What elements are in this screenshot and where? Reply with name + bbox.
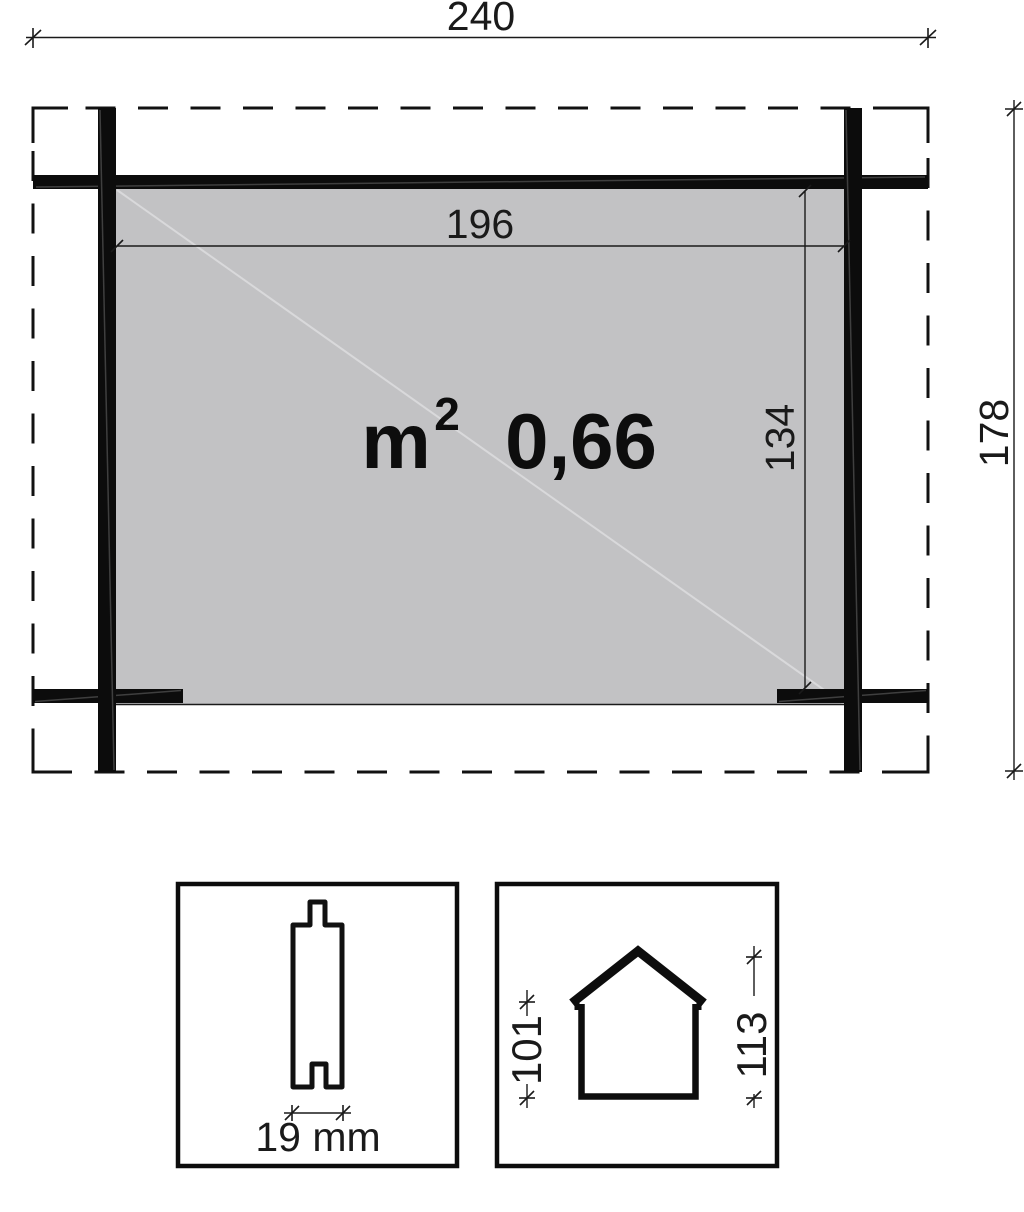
house-detail-box: 101 113 bbox=[497, 884, 777, 1166]
outline-corner-top-right bbox=[893, 108, 928, 143]
board-profile-icon bbox=[293, 902, 342, 1087]
dim-outer-width-label: 240 bbox=[447, 0, 515, 39]
top-wall-beam bbox=[33, 175, 928, 189]
dim-inner-width-label: 196 bbox=[446, 201, 514, 247]
dim-ridge-height-label: 113 bbox=[728, 1012, 775, 1079]
dim-board-thickness-label: 19 mm bbox=[255, 1114, 380, 1160]
floor-panel bbox=[116, 189, 844, 705]
floor-plan-page: 240 196 bbox=[0, 0, 1024, 1212]
floor-area-unit: m bbox=[361, 397, 430, 485]
outline-corner-top-left bbox=[33, 108, 68, 143]
dim-wall-height-label: 101 bbox=[503, 1015, 550, 1085]
outline-corner-bottom-right bbox=[893, 737, 928, 772]
floor-area-exponent: 2 bbox=[434, 388, 460, 440]
left-post bbox=[98, 108, 116, 772]
floor-area-value: 0,66 bbox=[505, 397, 657, 485]
dim-outer-depth-label: 178 bbox=[971, 399, 1017, 467]
dim-outer-width: 240 bbox=[25, 0, 936, 48]
plan-drawing: 240 196 bbox=[0, 0, 1024, 1212]
dim-outer-depth: 178 bbox=[971, 100, 1023, 780]
dim-board-thickness: 19 mm bbox=[255, 1105, 380, 1160]
board-detail-box: 19 mm bbox=[178, 884, 457, 1166]
dim-inner-depth-label: 134 bbox=[757, 404, 803, 472]
outline-corner-bottom-left bbox=[33, 737, 68, 772]
right-post bbox=[844, 108, 862, 772]
floor-area-label: m 2 0,66 bbox=[361, 388, 657, 485]
